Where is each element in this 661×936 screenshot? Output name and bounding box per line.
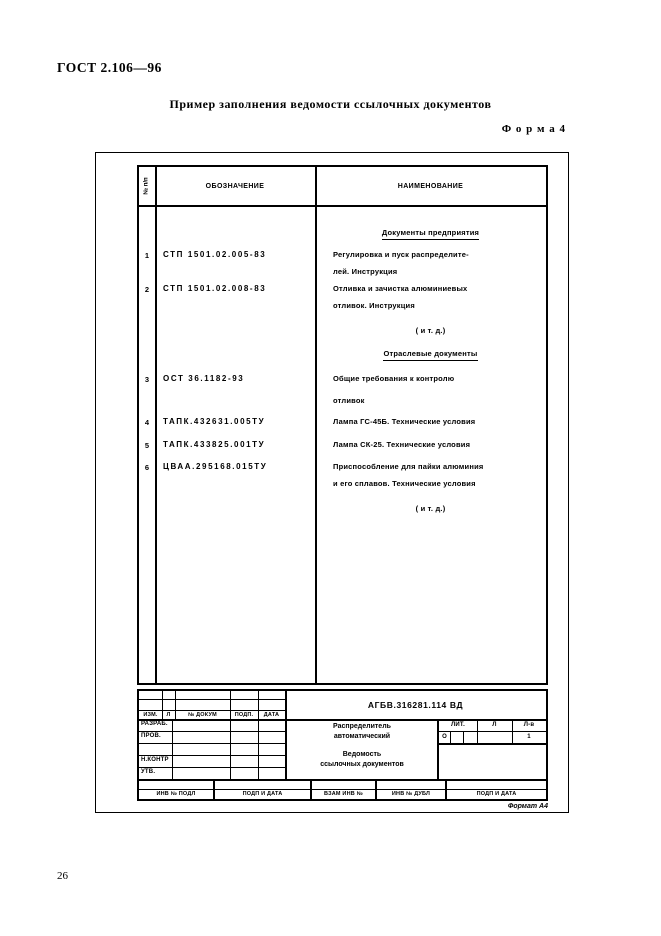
row-name-line: лей. Инструкция	[333, 267, 397, 276]
label-razrab: РАЗРАБ.	[141, 721, 168, 727]
row-name-line: Регулировка и пуск распределите-	[333, 250, 469, 259]
row-designation: ТАПК.433825.001ТУ	[163, 440, 265, 449]
row-designation: ЦВАА.295168.015ТУ	[163, 462, 267, 471]
title-block: ИЗМ. Л № ДОКУМ ПОДП. ДАТА АГБВ.316281.11…	[137, 689, 548, 801]
row-name-line: отливок. Инструкция	[333, 301, 415, 310]
etc-note: ( и т. д.)	[315, 504, 546, 513]
row-name-line: Лампа СК-25. Технические условия	[333, 440, 470, 449]
row-designation: ТАПК.432631.005ТУ	[163, 417, 265, 426]
grid-line	[230, 691, 231, 779]
label-utv: УТВ.	[141, 769, 155, 775]
row-name-line: отливок	[333, 396, 365, 405]
column-divider	[155, 167, 157, 683]
grid-line	[139, 743, 285, 744]
page-title: Пример заполнения ведомости ссылочных до…	[0, 97, 661, 112]
row-name-line: Общие требования к контролю	[333, 374, 454, 383]
label-vzam-inv: ВЗАМ ИНВ №	[312, 789, 375, 799]
etc-note: ( и т. д.)	[315, 326, 546, 335]
grid-line	[139, 755, 285, 756]
header-divider	[139, 205, 546, 207]
row-num: 4	[139, 417, 155, 427]
row-designation: СТП 1501.02.008-83	[163, 284, 266, 293]
label-inv-podl: ИНВ № ПОДЛ	[139, 789, 213, 799]
document-name-line1: Ведомость	[287, 751, 437, 758]
grid-line	[463, 731, 464, 743]
label-podp-data-2: ПОДП И ДАТА	[447, 789, 546, 799]
row-num: 2	[139, 284, 155, 294]
row-name-line: и его сплавов. Технические условия	[333, 479, 476, 488]
label-podp-data-1: ПОДП И ДАТА	[215, 789, 310, 799]
grid-line	[258, 691, 259, 779]
label-data: ДАТА	[258, 710, 285, 719]
label-sheets: Л-в	[512, 719, 546, 731]
format-note: Формат А4	[440, 803, 548, 810]
grid-line	[437, 743, 546, 745]
reference-documents-table: № п/п ОБОЗНАЧЕНИЕ НАИМЕНОВАНИЕ Документы…	[137, 165, 548, 685]
column-header-num-label: № п/п	[144, 177, 150, 194]
label-prov: ПРОВ.	[141, 733, 161, 739]
label-podp: ПОДП.	[230, 710, 258, 719]
row-num: 3	[139, 374, 155, 384]
row-name-line: Лампа ГС-45Б. Технические условия	[333, 417, 475, 426]
row-name-line: Отливка и зачистка алюминиевых	[333, 284, 467, 293]
product-name-line1: Распределитель	[287, 723, 437, 730]
document-designation: АГБВ.316281.114 ВД	[285, 691, 546, 719]
label-inv-dubl: ИНВ № ДУБЛ	[377, 789, 445, 799]
row-designation: СТП 1501.02.005-83	[163, 250, 266, 259]
label-doc-num: № ДОКУМ	[175, 710, 230, 719]
column-divider	[315, 167, 317, 683]
section-heading-enterprise-docs: Документы предприятия	[315, 228, 546, 237]
page-number: 26	[57, 870, 68, 882]
label-list: Л	[162, 710, 175, 719]
row-name-line: Приспособление для пайки алюминия	[333, 462, 483, 471]
grid-line	[172, 719, 173, 779]
sheets-value: 1	[512, 731, 546, 743]
section-heading-industry-docs: Отраслевые документы	[315, 349, 546, 358]
form-label: Ф о р м а 4	[450, 123, 566, 135]
grid-line	[139, 731, 285, 732]
product-name-line2: автоматический	[287, 733, 437, 740]
row-designation: ОСТ 36.1182-93	[163, 374, 244, 383]
column-header-designation: ОБОЗНАЧЕНИЕ	[155, 167, 315, 205]
row-num: 6	[139, 462, 155, 472]
column-header-name: НАИМЕНОВАНИЕ	[315, 167, 546, 205]
standard-number: ГОСТ 2.106—96	[57, 60, 162, 76]
document-page: ГОСТ 2.106—96 Пример заполнения ведомост…	[0, 0, 661, 936]
label-lit: ЛИТ.	[439, 719, 477, 731]
grid-line	[450, 731, 451, 743]
grid-line	[139, 699, 285, 700]
label-nkontr: Н.КОНТР	[141, 757, 169, 763]
column-header-num: № п/п	[139, 167, 155, 205]
document-name-line2: ссылочных документов	[287, 761, 437, 768]
grid-line	[139, 779, 546, 781]
label-sheet: Л	[477, 719, 512, 731]
grid-line	[139, 767, 285, 768]
row-num: 1	[139, 250, 155, 260]
row-num: 5	[139, 440, 155, 450]
label-izm: ИЗМ.	[139, 710, 162, 719]
lit-value: О	[439, 731, 450, 743]
